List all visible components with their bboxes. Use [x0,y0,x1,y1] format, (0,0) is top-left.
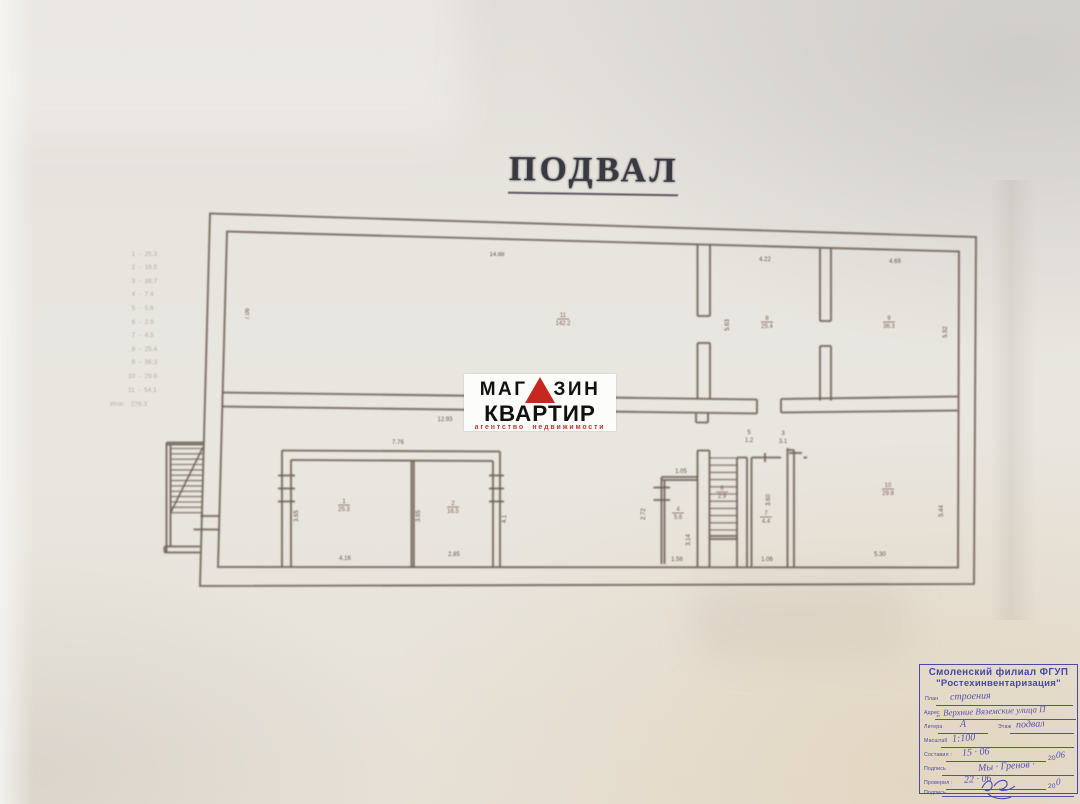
svg-text:9: 9 [887,316,891,322]
svg-text:1.2: 1.2 [745,438,754,444]
svg-text:7: 7 [764,511,768,517]
svg-text:7.76: 7.76 [392,440,404,446]
svg-text:36.3: 36.3 [883,324,895,330]
svg-text:4.4: 4.4 [762,519,771,525]
svg-text:1.05: 1.05 [675,469,687,475]
svg-text:3.65: 3.65 [294,510,300,522]
svg-text:4: 4 [676,507,680,513]
svg-text:8: 8 [765,316,769,322]
svg-text:6: 6 [720,486,724,492]
svg-text:25.3: 25.3 [338,507,350,513]
svg-text:14.88: 14.88 [489,252,505,258]
svg-text:25.4: 25.4 [761,324,773,330]
svg-text:11: 11 [560,313,567,319]
svg-text:1.06: 1.06 [761,557,773,563]
svg-text:4.22: 4.22 [759,257,771,263]
svg-text:7.06: 7.06 [245,308,251,320]
svg-text:1: 1 [342,499,346,505]
svg-text:2: 2 [451,501,455,507]
svg-text:10: 10 [885,483,892,489]
svg-text:3.1: 3.1 [779,439,788,445]
svg-text:4.1: 4.1 [502,514,508,523]
svg-text:12.93: 12.93 [437,417,453,423]
svg-text:5: 5 [747,430,751,436]
svg-text:3.65: 3.65 [416,510,422,522]
svg-text:4.69: 4.69 [889,259,901,265]
svg-text:3.60: 3.60 [766,494,772,506]
svg-text:16.5: 16.5 [447,509,459,515]
svg-text:29.8: 29.8 [882,491,894,497]
svg-text:3: 3 [781,431,785,437]
svg-text:2.9: 2.9 [718,494,727,500]
svg-text:142.2: 142.2 [555,321,571,327]
svg-text:5.63: 5.63 [725,319,731,331]
svg-text:4.16: 4.16 [339,556,351,562]
svg-text:1.56: 1.56 [671,557,683,563]
svg-text:3.14: 3.14 [686,534,692,546]
svg-text:5.92: 5.92 [943,326,949,338]
svg-text:5.30: 5.30 [874,552,886,558]
svg-text:2.72: 2.72 [641,508,647,520]
svg-text:2.85: 2.85 [448,552,460,558]
svg-text:5.6: 5.6 [674,515,683,521]
svg-text:5.44: 5.44 [939,505,945,517]
